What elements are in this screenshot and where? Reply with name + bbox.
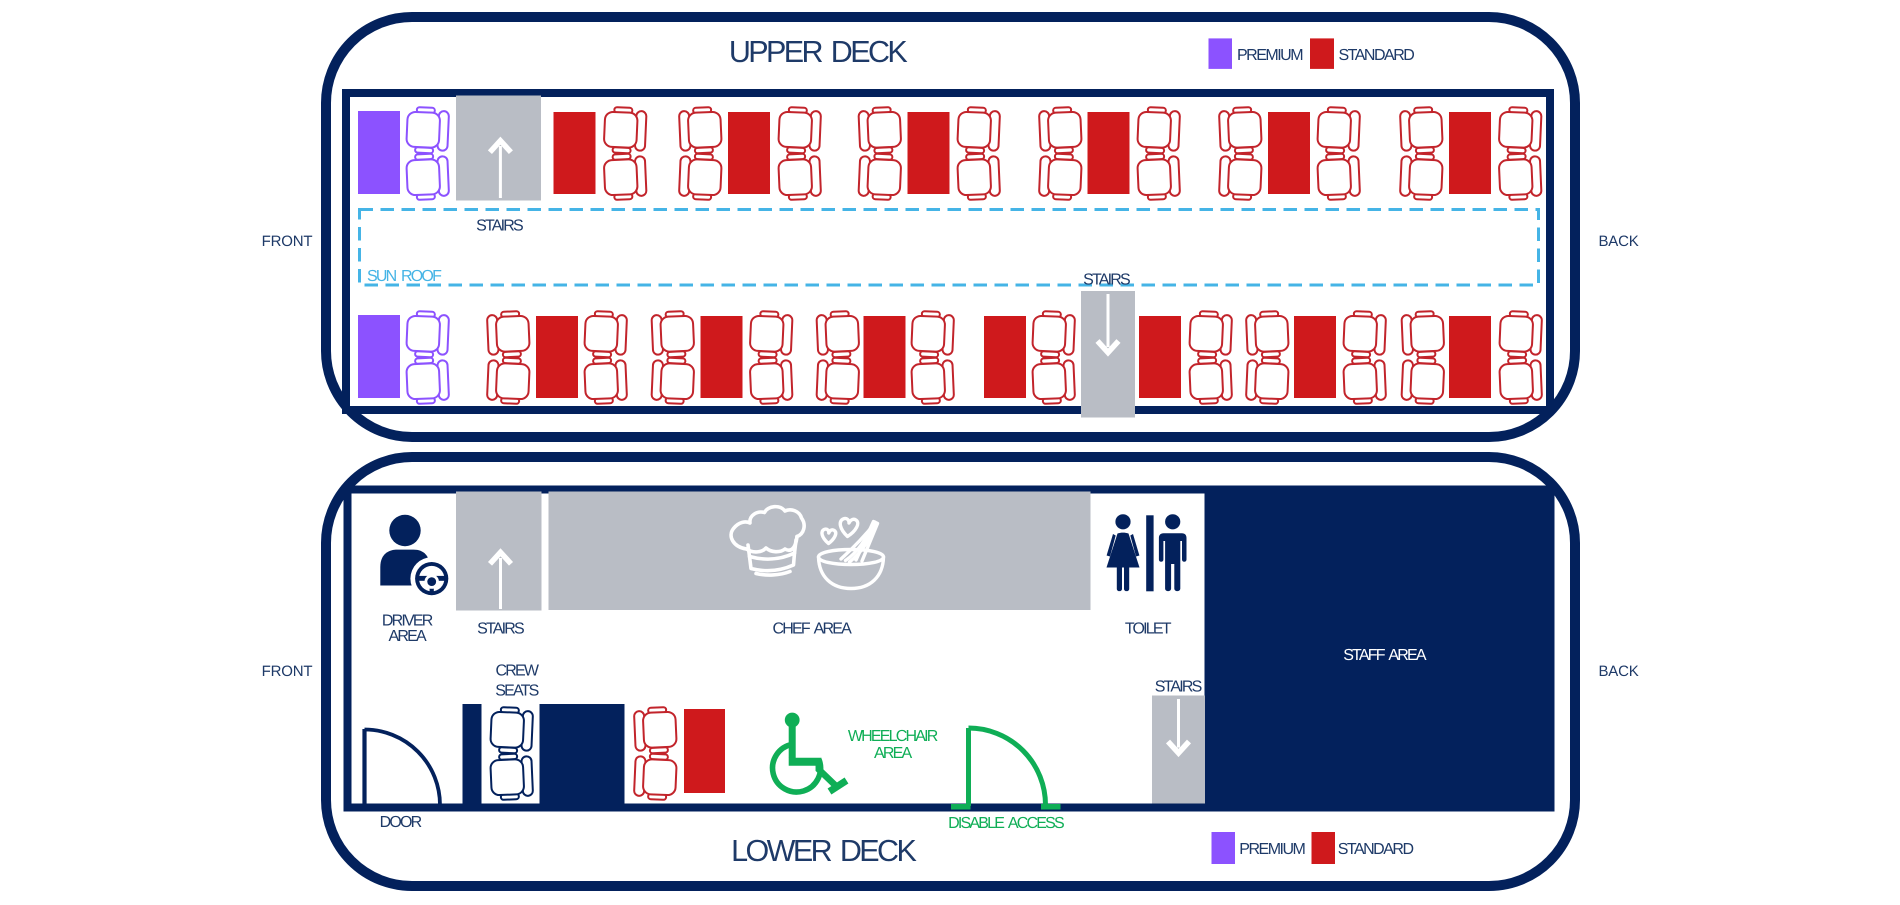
- svg-text:BACK: BACK: [1598, 663, 1638, 680]
- svg-text:AREA: AREA: [389, 628, 427, 645]
- svg-text:FRONT: FRONT: [262, 233, 313, 250]
- svg-text:CHEF AREA: CHEF AREA: [773, 621, 853, 638]
- svg-text:STAFF AREA: STAFF AREA: [1343, 647, 1427, 664]
- svg-text:PREMIUM: PREMIUM: [1239, 841, 1305, 858]
- svg-text:CREW: CREW: [496, 663, 540, 680]
- svg-text:STAIRS: STAIRS: [1155, 679, 1202, 696]
- svg-text:AREA: AREA: [874, 745, 912, 762]
- svg-text:STANDARD: STANDARD: [1339, 47, 1415, 64]
- svg-text:STAIRS: STAIRS: [476, 218, 523, 235]
- svg-text:STAIRS: STAIRS: [1083, 272, 1130, 289]
- svg-text:STAIRS: STAIRS: [477, 621, 524, 638]
- svg-text:PREMIUM: PREMIUM: [1237, 47, 1303, 64]
- svg-text:LOWER DECK: LOWER DECK: [731, 834, 916, 868]
- svg-text:BACK: BACK: [1598, 233, 1638, 250]
- svg-text:SEATS: SEATS: [495, 683, 538, 700]
- svg-text:DOOR: DOOR: [380, 814, 422, 831]
- svg-text:UPPER DECK: UPPER DECK: [729, 35, 908, 69]
- svg-text:DISABLE ACCESS: DISABLE ACCESS: [948, 815, 1064, 832]
- svg-text:FRONT: FRONT: [262, 663, 313, 680]
- svg-text:STANDARD: STANDARD: [1338, 841, 1414, 858]
- svg-text:WHEELCHAIR: WHEELCHAIR: [848, 728, 938, 745]
- svg-text:DRIVER: DRIVER: [382, 613, 433, 630]
- svg-text:TOILET: TOILET: [1125, 621, 1172, 638]
- svg-text:SUN ROOF: SUN ROOF: [367, 268, 442, 285]
